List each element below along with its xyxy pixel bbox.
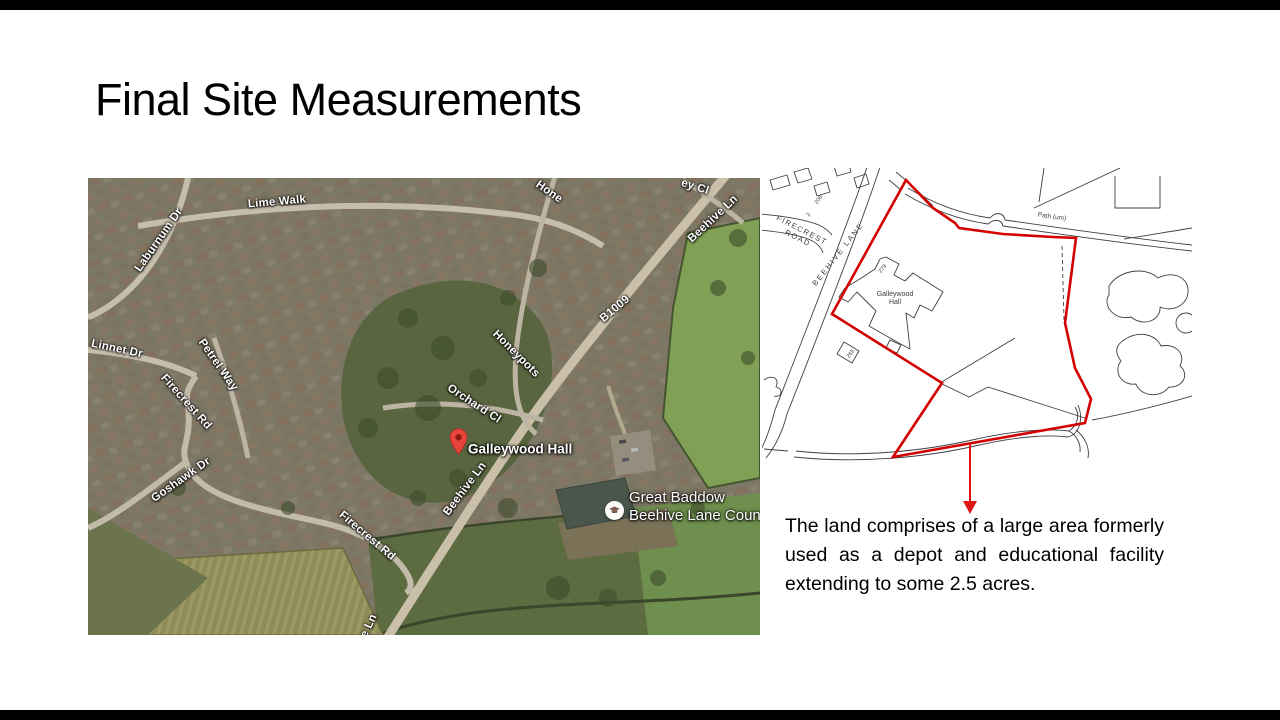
map-pin-label: Galleywood Hall	[468, 442, 572, 457]
map-pin-icon	[450, 428, 467, 455]
slide-title: Final Site Measurements	[95, 74, 581, 126]
school-label-line2: Beehive Lane County…	[629, 507, 760, 525]
letterbox-bottom	[0, 710, 1280, 720]
site-boundary-outline	[832, 180, 1091, 457]
plan-building-label: Galleywood Hall	[877, 291, 914, 307]
slide: Final Site Measurements	[0, 0, 1280, 720]
site-plan[interactable]: FIRECREST ROAD BEEHIVE LANE Path (um) Ga…	[762, 168, 1192, 520]
caption-text: The land comprises of a large area forme…	[785, 512, 1164, 599]
arrow-icon	[963, 444, 977, 514]
plan-building-label-line1: Galleywood	[877, 291, 914, 298]
letterbox-top	[0, 0, 1280, 10]
school-icon	[605, 501, 624, 520]
plan-building-label-line2: Hall	[889, 299, 901, 306]
school-label: Great Baddow Beehive Lane County…	[629, 489, 760, 525]
school-label-line1: Great Baddow	[629, 489, 760, 507]
site-plan-drawing	[762, 168, 1192, 520]
satellite-map[interactable]: Lime Walk Laburnum Dr Linnet Dr Petrel W…	[88, 178, 760, 635]
